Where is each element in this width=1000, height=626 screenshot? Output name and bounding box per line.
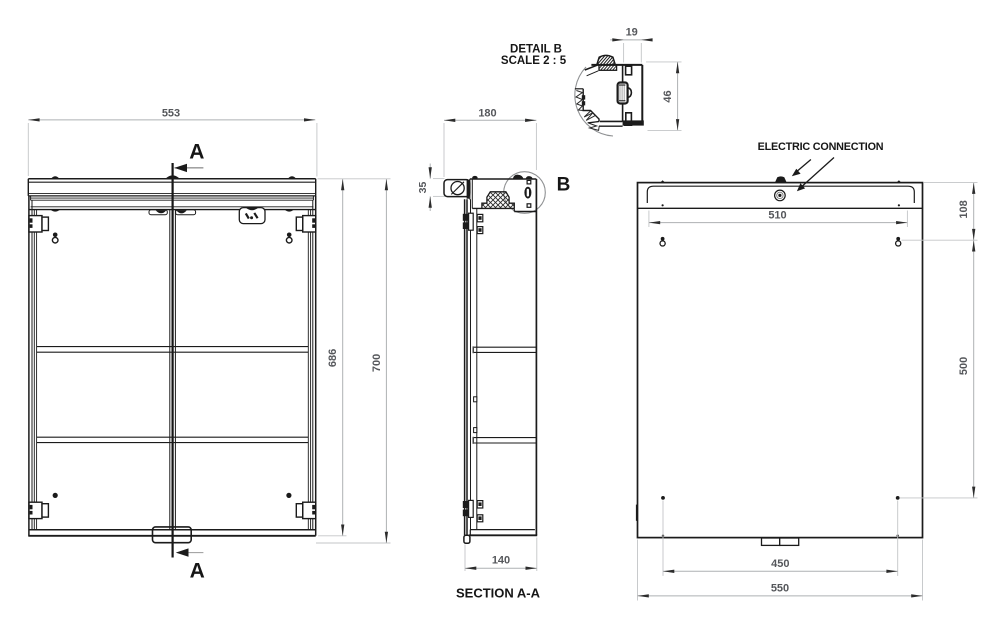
svg-text:550: 550 bbox=[771, 583, 789, 595]
svg-text:140: 140 bbox=[492, 554, 510, 566]
svg-text:46: 46 bbox=[662, 90, 674, 102]
svg-text:450: 450 bbox=[771, 558, 789, 570]
svg-text:A: A bbox=[189, 141, 204, 164]
svg-text:686: 686 bbox=[327, 349, 339, 367]
svg-text:108: 108 bbox=[958, 200, 970, 218]
svg-text:500: 500 bbox=[958, 357, 970, 375]
svg-text:SECTION A-A: SECTION A-A bbox=[456, 586, 541, 601]
svg-text:510: 510 bbox=[768, 210, 786, 222]
svg-text:A: A bbox=[190, 560, 205, 583]
svg-text:DETAIL B: DETAIL B bbox=[510, 44, 562, 56]
svg-text:SCALE 2 : 5: SCALE 2 : 5 bbox=[501, 55, 567, 67]
svg-text:ELECTRIC CONNECTION: ELECTRIC CONNECTION bbox=[758, 141, 884, 153]
svg-text:700: 700 bbox=[371, 354, 383, 372]
svg-text:180: 180 bbox=[478, 108, 496, 120]
svg-text:B: B bbox=[557, 175, 571, 196]
svg-text:19: 19 bbox=[626, 27, 638, 39]
svg-text:553: 553 bbox=[162, 107, 180, 119]
svg-text:35: 35 bbox=[417, 182, 429, 194]
